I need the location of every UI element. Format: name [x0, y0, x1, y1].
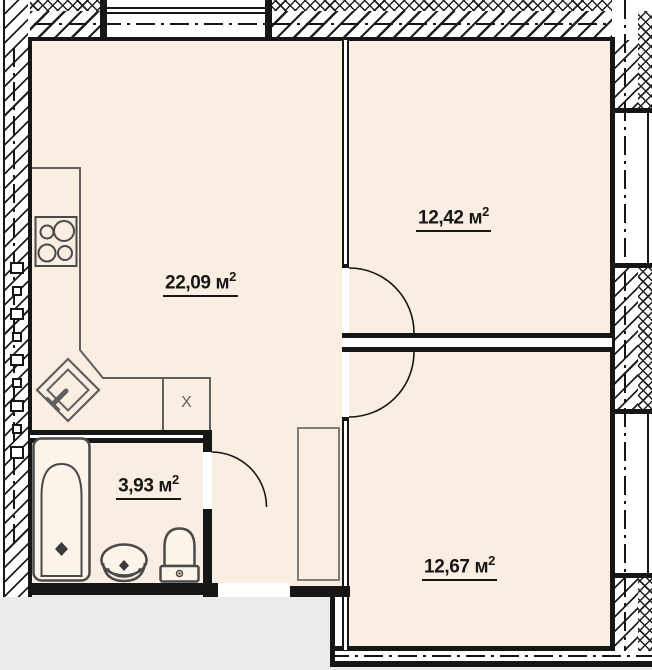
- x-unit-text: X: [181, 394, 192, 411]
- area-sup: 2: [482, 204, 489, 219]
- room-area-label-living: 22,09 м2: [128, 269, 273, 297]
- area-sup: 2: [172, 472, 179, 487]
- counter-x-unit-label: X: [163, 394, 210, 412]
- area-value: 12,42 м: [418, 207, 482, 228]
- floor-plan: X 22,09 м2 12,42 м2 12,67 м2 3,93 м2: [0, 0, 652, 670]
- door-arc-bedroom-upper: [349, 268, 414, 333]
- bathtub-icon: [34, 439, 90, 581]
- area-value: 22,09 м: [165, 272, 229, 293]
- room-area-label-bedroom-upper: 12,42 м2: [381, 204, 526, 232]
- area-value: 3,93 м: [118, 475, 172, 496]
- fixtures-layer: [0, 0, 652, 670]
- room-area-label-bathroom: 3,93 м2: [76, 472, 221, 500]
- stove-icon: [36, 217, 77, 266]
- area-value: 12,67 м: [424, 556, 488, 577]
- door-arc-bedroom-lower: [349, 352, 414, 417]
- toilet-icon: [161, 529, 199, 582]
- washbasin-icon: [102, 545, 147, 582]
- area-sup: 2: [488, 553, 495, 568]
- room-area-label-bedroom-lower: 12,67 м2: [387, 553, 532, 581]
- kitchen-sink-icon: [37, 359, 99, 421]
- area-sup: 2: [229, 269, 236, 284]
